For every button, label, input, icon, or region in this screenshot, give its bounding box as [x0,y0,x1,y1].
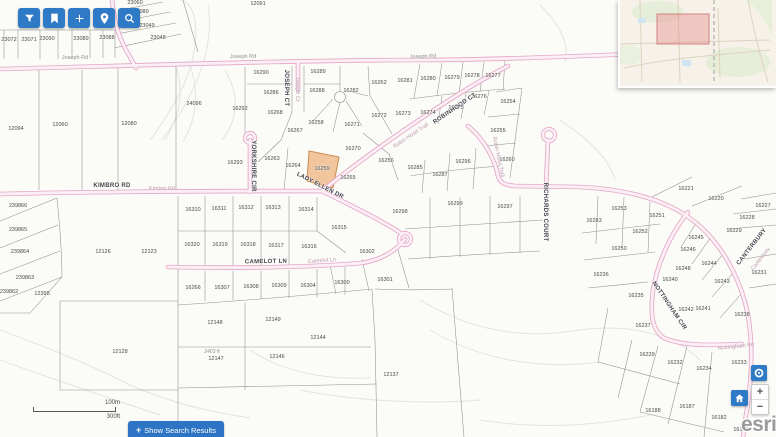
parcel-label: 16250 [611,246,626,252]
street-label: Joseph Rd [62,55,88,61]
street-label: Joseph Rd [230,54,256,60]
parcel-label: 16273 [395,111,410,117]
parcel-label: 16301 [377,277,392,283]
parcel-label: 16258 [308,120,323,126]
parcel-label: 239862 [0,289,18,295]
parcel-label: 16240 [662,277,677,283]
scale-bar-line [33,411,116,412]
overview-inset-map[interactable] [618,0,776,88]
parcel-label: 12148 [207,320,222,326]
parcel-label: 16296 [455,159,470,165]
selected-parcel-label: 16259 [314,166,329,172]
parcel-label: 16242 [678,307,693,313]
parcel-label: 16270 [345,146,360,152]
parcel-label: 16253 [611,206,626,212]
bookmarks-button[interactable] [43,8,65,28]
parcel-label: 16234 [696,366,711,372]
parcel-label: 16316 [301,244,316,250]
parcel-label: 16317 [268,243,283,249]
parcel-label: 16319 [212,242,227,248]
parcel-label: 239863 [16,275,34,281]
parcel-label: 16311 [212,206,227,212]
parcel-label: 16308 [243,284,258,290]
parcel-label: 12144 [310,335,325,341]
parcel-label: 16266 [185,285,200,291]
parcel-label: 16320 [184,242,199,248]
parcel-label: 16267 [287,128,302,134]
locate-address-button[interactable] [93,8,115,28]
parcel-label: 16238 [734,312,749,318]
parcel-label: 16300 [334,280,349,286]
street-label: YORKSHIRE CIR [250,140,256,192]
parcel-label: 12128 [112,349,127,355]
locate-icon [753,367,765,379]
parcel-label: 24096 [186,101,201,107]
parcel-label: 239864 [11,249,29,255]
parcel-label: 12060 [52,122,67,128]
parcel-label: 16288 [309,88,324,94]
parcel-label: 16318 [240,242,255,248]
parcel-label: 16298 [392,209,407,215]
pin-icon [98,12,111,25]
zoom-control: + − [751,384,769,415]
show-search-results-label: Show Search Results [144,426,216,435]
show-search-results-button[interactable]: + Show Search Results [128,421,224,437]
parcel-label: 16254 [500,99,515,105]
add-button[interactable] [68,8,90,28]
street-label: RICHARDS COURT [542,183,548,242]
street-label: KIMBRO RD [93,183,130,189]
parcel-label: 16237 [635,323,650,329]
parcel-label: 16228 [739,215,754,221]
parcel-label: 23071 [21,37,36,43]
parcel-label: 16182 [711,415,726,421]
parcel-label: 16297 [497,204,512,210]
parcel-label: 16248 [675,266,690,272]
parcel-label: 16244 [701,261,716,267]
street-label: JOSEPH CT [283,70,289,107]
parcel-label: 12147 [208,356,223,362]
parcel-label: 16279 [444,75,459,81]
parcel-label: 16271 [344,122,359,128]
parcel-label: 16220 [708,196,723,202]
parcel-label: 16235 [628,293,643,299]
parcel-label: 16246 [680,247,695,253]
parcel-label: 16268 [267,110,282,116]
parcel-label: 16304 [300,283,315,289]
street-label: Joseph Ct [294,77,300,102]
parcel-label: 16287 [432,172,447,178]
parcel-label: 16282 [343,88,358,94]
parcel-label: 16243 [714,279,729,285]
parcel-label: 16313 [265,205,280,211]
parcel-label: 23049 [139,23,154,29]
parcel-label: 16241 [695,306,710,312]
map-application: 2307223071230902308923088230602308023049… [0,0,776,437]
parcel-label: 16278 [464,73,479,79]
parcel-label: 23090 [39,36,54,42]
parcel-label: 2403 ft [204,349,219,355]
parcel-label: 16236 [593,272,608,278]
street-label: Joseph Rd [410,54,436,61]
parcel-label: 12149 [265,317,280,323]
parcel-label: 12080 [121,121,136,127]
add-icon [73,12,86,25]
parcel-label: 16285 [407,165,422,171]
parcel-label: 16232 [667,360,682,366]
parcel-label: 16233 [731,360,746,366]
parcel-label: 23048 [150,35,165,41]
zoom-out-button[interactable]: − [752,400,768,414]
parcel-label: 16310 [185,207,200,213]
locate-button[interactable] [751,365,767,381]
scale-metric-label: 100m [105,400,120,406]
filter-button[interactable] [18,8,40,28]
parcel-label: 16229 [726,228,741,234]
parcel-label: 16227 [755,203,770,209]
parcel-label: 16314 [298,207,313,213]
parcel-label: 16274 [420,110,435,116]
overview-basemap [620,0,772,82]
contour-lines [0,0,700,425]
scale-bar: 100m 300ft [33,399,116,423]
parcel-label: 12137 [383,372,398,378]
parcel-label: 239865 [9,227,27,233]
parcel-label: 239866 [9,203,27,209]
parcel-label: 16265 [340,175,355,181]
parcel-label: 16221 [678,186,693,192]
parcel-label: 16280 [420,76,435,82]
parcel-label: 16239 [639,352,654,358]
parcel-label: 12123 [141,249,156,255]
esri-logo: esri [741,413,776,437]
parcel-label: 16315 [331,225,346,231]
street-label: Kimbro Rd [149,186,175,192]
parcel-label: 16293 [227,160,242,166]
zoom-in-button[interactable]: + [752,385,768,399]
parcel-label: 16307 [214,285,229,291]
parcel-label: 23089 [73,36,88,42]
home-icon [734,393,745,404]
parcel-label: 16262 [371,80,386,86]
search-icon [123,12,136,25]
parcel-label: 16263 [264,156,279,162]
parcel-label: 16264 [285,163,300,169]
search-button[interactable] [118,8,140,28]
parcel-label: 16272 [371,113,386,119]
parcel-label: 16251 [649,213,664,219]
parcel-label: 16302 [359,249,374,255]
parcel-label: 16290 [253,70,268,76]
parcel-label: 16309 [271,283,286,289]
parcel-label: 16187 [679,404,694,410]
parcel-label: 12091 [250,1,265,7]
street-label: CAMELOT LN [245,259,287,266]
parcel-label: 23072 [1,37,16,43]
bookmark-icon [48,12,61,25]
parcel-label: 16245 [688,235,703,241]
parcel-label: 16286 [263,90,278,96]
parcel-label: 16256 [378,158,393,164]
parcel-label: 16312 [238,205,253,211]
parcel-label: 23060 [127,0,142,6]
home-button[interactable] [731,390,748,406]
parcel-label: 12094 [8,126,23,132]
parcel-label: 16283 [586,218,601,224]
parcel-label: 16255 [490,128,505,134]
parcel-label: 16299 [447,201,462,207]
extent-rectangle[interactable] [657,14,709,44]
scale-imperial-label: 300ft [107,414,120,420]
parcel-label: 16252 [632,229,647,235]
parcel-label: 16281 [397,78,412,84]
parcel-label: 16289 [310,69,325,75]
plus-icon: + [136,425,141,435]
parcel-label: 12146 [269,354,284,360]
parcel-label: 16277 [485,73,500,79]
parcel-label: 12398 [34,291,49,297]
parcel-label: 12126 [95,249,110,255]
filter-icon [23,12,36,25]
parcel-label: 16292 [232,106,247,112]
parcel-label: 16188 [645,408,660,414]
parcel-label: 23088 [99,35,114,41]
